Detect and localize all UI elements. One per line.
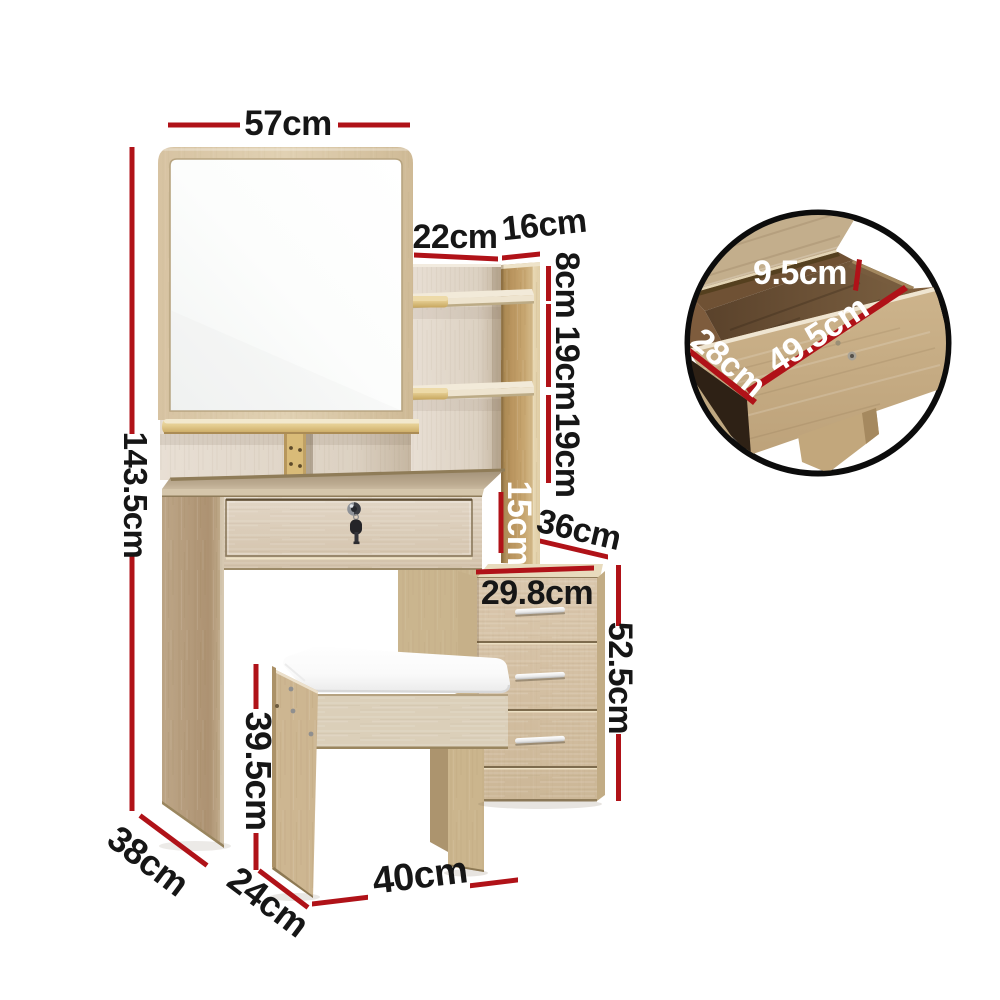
svg-text:9.5cm: 9.5cm [753, 254, 847, 292]
svg-text:39.5cm: 39.5cm [238, 711, 279, 830]
svg-text:57cm: 57cm [244, 104, 332, 143]
svg-text:19cm: 19cm [548, 326, 586, 411]
svg-text:15cm: 15cm [500, 481, 538, 566]
svg-text:29.8cm: 29.8cm [481, 574, 593, 612]
svg-text:22cm: 22cm [413, 218, 498, 256]
svg-text:8cm: 8cm [548, 252, 586, 319]
svg-text:52.5cm: 52.5cm [601, 622, 639, 734]
svg-text:143.5cm: 143.5cm [117, 432, 154, 559]
svg-text:19cm: 19cm [548, 413, 586, 498]
